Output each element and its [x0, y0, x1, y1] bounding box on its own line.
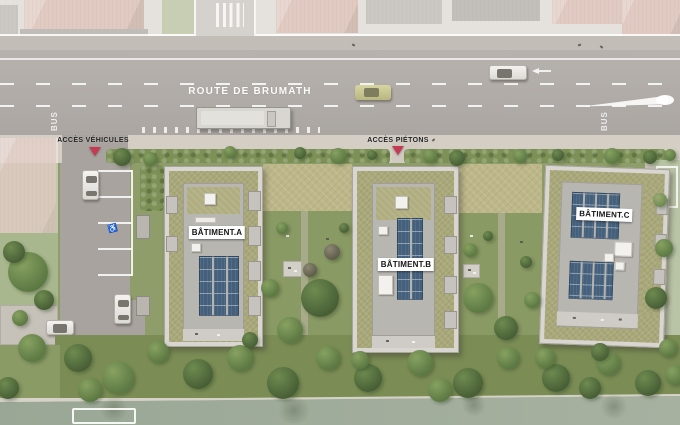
- building-a-label: BÂTIMENT.A: [189, 226, 245, 239]
- existing-neighborhood: [0, 0, 680, 36]
- skylight: [615, 261, 625, 270]
- skylight: [378, 226, 388, 235]
- garden-bench: [286, 235, 289, 237]
- lane-direction-arrow: [539, 70, 551, 72]
- hedge-row: [106, 149, 390, 164]
- road-name-label: ROUTE DE BRUMATH: [150, 86, 350, 97]
- parking-bay-line: [98, 248, 132, 250]
- curb-line: [0, 34, 194, 36]
- balcony: [654, 234, 667, 250]
- building-a-terrace: [183, 329, 244, 341]
- meadow-lawn: [459, 164, 542, 213]
- balcony: [166, 196, 178, 214]
- north-sidewalk: [0, 36, 680, 50]
- access-vehicles-arrow-icon: [89, 147, 101, 156]
- route-de-brumath-road: ROUTE DE BRUMATH BUS BUS: [0, 50, 680, 135]
- garden-patio: [463, 264, 480, 278]
- planting-strip: [140, 165, 164, 211]
- balcony: [248, 191, 261, 211]
- balcony: [653, 269, 666, 285]
- site-plan: ROUTE DE BRUMATH BUS BUS ACCÈS VÉHICULES…: [0, 0, 680, 425]
- fade-overlay: [0, 138, 58, 233]
- parking-bay-line: [131, 170, 133, 276]
- garden-patio: [283, 261, 302, 277]
- balcony: [248, 296, 261, 316]
- hedge-row: [404, 149, 666, 164]
- garden-bench: [326, 238, 329, 240]
- balcony: [444, 236, 457, 254]
- lane-marking: [0, 58, 680, 60]
- building-b-terrace: [372, 336, 435, 348]
- parking-bay-line: [98, 170, 132, 172]
- balcony: [655, 199, 668, 215]
- neighbor-building-outline: [72, 408, 136, 424]
- curb-line: [256, 34, 680, 36]
- utility-box: [136, 296, 150, 316]
- parked-car: [114, 294, 131, 324]
- bus-lane-marking-left: BUS: [50, 103, 59, 131]
- south-sidewalk: ACCÈS VÉHICULES ACCÈS PIÉTONS: [0, 135, 680, 163]
- skylight: [614, 241, 633, 257]
- solar-panel-array: [569, 261, 614, 301]
- balcony: [248, 261, 261, 281]
- tree-reflection: [276, 397, 312, 423]
- utility-box: [136, 215, 150, 239]
- building-b-label: BÂTIMENT.B: [378, 258, 434, 271]
- balcony: [248, 226, 261, 246]
- balcony: [444, 196, 457, 214]
- skylight: [191, 243, 201, 252]
- skylight: [604, 253, 614, 262]
- tree-reflection: [599, 394, 629, 418]
- west-lawn-low: [0, 345, 60, 398]
- access-pedestrians-arrow-icon: [392, 146, 404, 155]
- lane-direction-arrow: [532, 68, 539, 74]
- bus-vehicle: [196, 107, 291, 129]
- roof-vent: [195, 217, 216, 223]
- fade-overlay: [0, 0, 680, 36]
- lane-marking: [0, 105, 680, 107]
- skylight: [395, 196, 408, 209]
- residence-grounds: ♿: [0, 163, 680, 398]
- solar-panel-array: [199, 256, 239, 316]
- garden-bench: [470, 235, 473, 237]
- building-c: BÂTIMENT.C: [539, 165, 670, 348]
- lane-marking: [0, 83, 680, 85]
- building-b: BÂTIMENT.B: [352, 166, 459, 353]
- parking-bay-line: [98, 274, 132, 276]
- building-a: BÂTIMENT.A: [164, 166, 263, 347]
- white-car: [489, 65, 527, 80]
- green-car: [355, 85, 391, 100]
- balcony: [444, 311, 457, 329]
- rooftop-structure: [378, 275, 393, 295]
- parking-bay-line: [98, 196, 132, 198]
- garden-bench: [520, 241, 523, 243]
- balcony: [444, 276, 457, 294]
- bus-lane-taper-marking: [656, 95, 674, 105]
- bus-lane-taper-marking: [582, 95, 668, 111]
- meadow-lawn: [263, 164, 352, 211]
- skylight: [204, 193, 216, 205]
- bus-lane-marking-right: BUS: [600, 103, 609, 131]
- building-c-label: BÂTIMENT.C: [576, 207, 633, 222]
- parked-car: [82, 170, 99, 200]
- tree-reflection: [461, 394, 487, 416]
- building-c-terrace: [557, 311, 638, 328]
- parked-car: [46, 320, 74, 335]
- balcony: [166, 236, 178, 252]
